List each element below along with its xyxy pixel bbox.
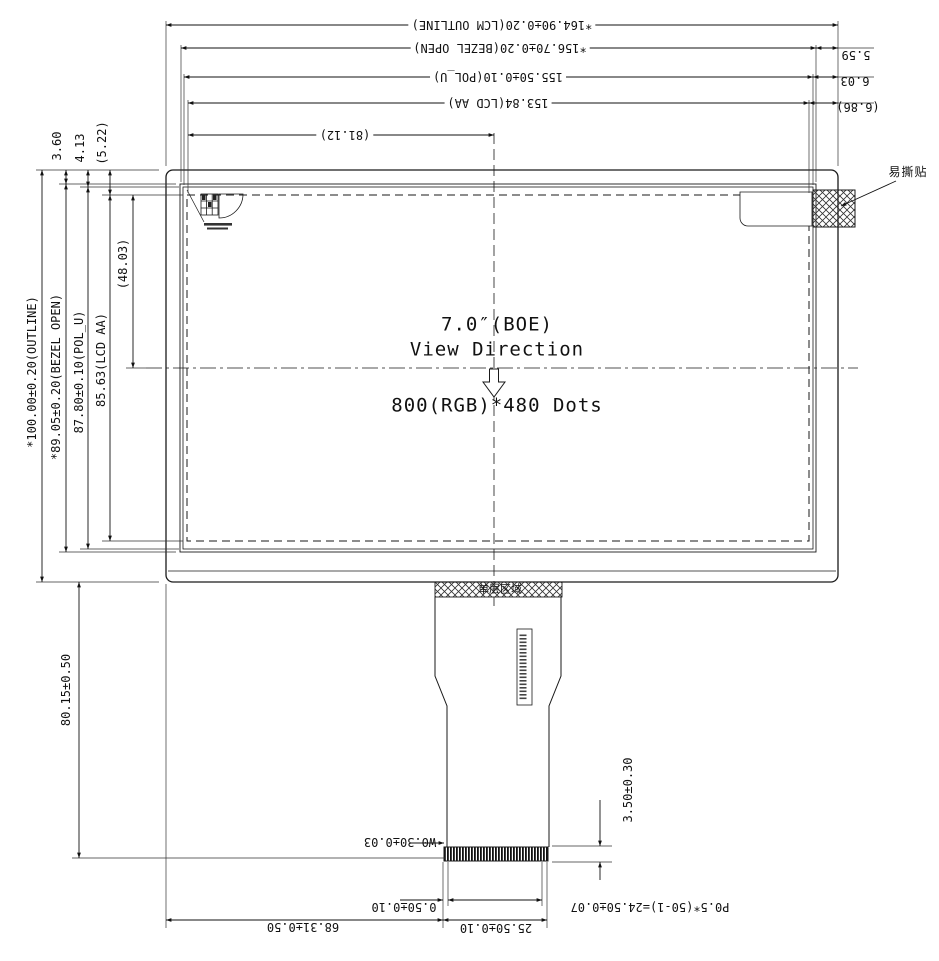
dim-aa-center-height: (48.03) <box>117 239 129 290</box>
dim-left-aa-margin: (5.22) <box>96 121 108 164</box>
lcm-outline <box>166 170 838 582</box>
extension-lines <box>36 21 874 928</box>
tear-sticker-hatch <box>813 190 855 227</box>
display-size-label: 7.0″(BOE) <box>441 316 553 335</box>
dim-lcm-outline-width: *164.90±0.20(LCM OUTLINE) <box>409 19 596 31</box>
dim-connector-width: 25.50±0.10 <box>460 922 532 934</box>
dim-outline-height: *100.00±0.20(OUTLINE) <box>26 296 38 448</box>
tear-sticker-label: 易撕贴 <box>888 166 927 178</box>
dim-fpc-offset: 68.31±0.50 <box>267 921 339 933</box>
fpc-part-number-text <box>520 633 530 701</box>
dim-pol-width: 155.50±0.10(POL_U) <box>430 71 566 83</box>
dim-bezel-open-width: *156.70±0.20(BEZEL OPEN) <box>410 42 589 54</box>
dim-lcd-aa-height: 85.63(LCD AA) <box>95 313 107 407</box>
drawing-linework <box>0 0 939 961</box>
dim-pin-width: W0.30±0.03 <box>364 836 436 848</box>
dim-connector-height: 3.50±0.30 <box>622 757 634 822</box>
dim-lcd-aa-width: 153.84(LCD AA) <box>444 97 551 109</box>
sticker-tab-area <box>740 192 812 226</box>
single-layer-area-label: 单层区域 <box>478 584 522 595</box>
dimension-lines <box>42 25 896 920</box>
fpc-outline <box>435 597 561 847</box>
pixel-structure-icon <box>187 190 243 230</box>
fpc-connector-pins <box>444 847 548 861</box>
view-direction-label: View Direction <box>410 341 584 360</box>
dim-left-bezel-margin: 3.60 <box>51 132 63 161</box>
lcd-mechanical-drawing: *164.90±0.20(LCM OUTLINE) *156.70±0.20(B… <box>0 0 939 961</box>
dim-edge-margin: 0.50±0.10 <box>371 901 436 913</box>
view-direction-arrow <box>483 369 505 397</box>
dim-pin-pitch: P0.5*(50-1)=24.50±0.07 <box>571 901 730 913</box>
resolution-label: 800(RGB)*480 Dots <box>391 397 602 416</box>
dim-right-bezel-margin: 5.59 <box>842 49 871 61</box>
dim-bezel-open-height: *89.05±0.20(BEZEL OPEN) <box>50 294 62 460</box>
dim-pol-height: 87.80±0.10(POL_U) <box>73 311 85 434</box>
dim-right-aa-margin: (6.86) <box>836 101 879 113</box>
dim-right-pol-margin: 6.03 <box>841 75 870 87</box>
dim-left-pol-margin: 4.13 <box>74 134 86 163</box>
dim-fpc-length: 80.15±0.50 <box>60 654 72 726</box>
dim-aa-center-width: (81.12) <box>317 129 374 141</box>
